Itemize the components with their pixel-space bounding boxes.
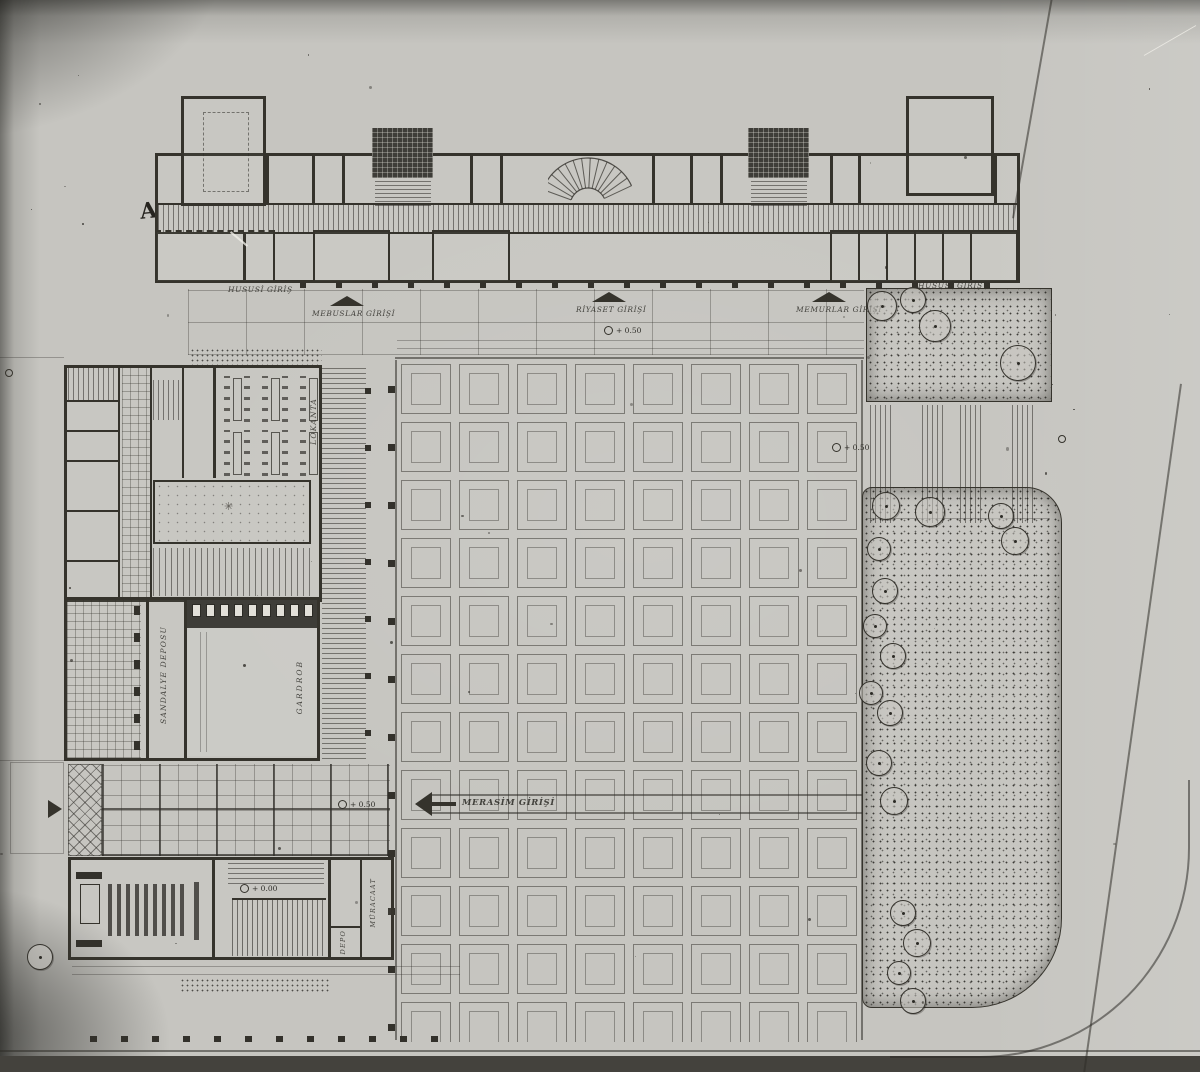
plaza-cell bbox=[807, 1002, 857, 1042]
portico-column-dot bbox=[444, 282, 450, 288]
plaza-cell-inner bbox=[585, 489, 615, 521]
plaza-cell-inner bbox=[643, 1011, 673, 1042]
colonnade-line bbox=[510, 280, 830, 281]
plaza-cell bbox=[401, 538, 451, 588]
wall bbox=[213, 368, 216, 478]
sideboard bbox=[76, 872, 102, 879]
plaza-cell bbox=[749, 538, 799, 588]
plaza-cell-inner bbox=[759, 895, 789, 927]
plaza-cell bbox=[749, 422, 799, 472]
portico-column-dot bbox=[552, 282, 558, 288]
plaza-cell bbox=[459, 828, 509, 878]
plaza-cell-inner bbox=[759, 721, 789, 753]
plaza-cell bbox=[807, 364, 857, 414]
left-road-line bbox=[0, 357, 64, 358]
plaza-cell bbox=[575, 1002, 625, 1042]
bench-bar bbox=[180, 884, 184, 936]
plaza-cell bbox=[575, 886, 625, 936]
plaza-cell bbox=[807, 480, 857, 530]
plaza-cell bbox=[459, 886, 509, 936]
room-label-store: DEPO bbox=[340, 930, 347, 954]
south-column-dot bbox=[121, 1036, 128, 1042]
north-planting-strip bbox=[190, 348, 322, 365]
column-dot bbox=[388, 386, 395, 393]
lattice-strip bbox=[68, 764, 102, 856]
west-stair-treads bbox=[375, 178, 431, 206]
level-marker-hall: + 0.00 bbox=[240, 884, 277, 893]
room-label-chair-store: SANDALYE DEPOSU bbox=[160, 626, 168, 724]
rooms-lower-west bbox=[155, 230, 275, 283]
step-line bbox=[72, 974, 460, 975]
wall bbox=[360, 860, 362, 958]
plaza-cell-inner bbox=[411, 953, 441, 985]
wall bbox=[994, 156, 997, 204]
plaza-cell-inner bbox=[817, 837, 847, 869]
grand-stair bbox=[232, 898, 326, 956]
wc-fixture bbox=[234, 604, 243, 617]
wall bbox=[266, 156, 269, 204]
fan-stair bbox=[548, 156, 658, 208]
room-label-restaurant: LOKANTA bbox=[310, 398, 318, 445]
tree-icon bbox=[877, 700, 903, 726]
restaurant-tables bbox=[262, 430, 288, 476]
plaza-cell-inner bbox=[585, 431, 615, 463]
dust-speck bbox=[1054, 751, 1056, 753]
plaza-cell-inner bbox=[469, 489, 499, 521]
south-planting-strip bbox=[180, 978, 330, 992]
plaza-west-edge bbox=[395, 360, 397, 1040]
plaza-cell bbox=[459, 538, 509, 588]
plaza-cell bbox=[401, 480, 451, 530]
plaza-cell bbox=[807, 944, 857, 994]
bench-bar bbox=[108, 884, 112, 936]
plant-icon: ✳ bbox=[224, 500, 233, 513]
plaza-cell-inner bbox=[759, 431, 789, 463]
tree-icon bbox=[988, 503, 1014, 529]
south-column-dot bbox=[152, 1036, 159, 1042]
column-dot bbox=[365, 616, 371, 622]
tree-icon bbox=[1001, 527, 1029, 555]
plaza-cell bbox=[575, 944, 625, 994]
bottom-road-band bbox=[0, 1056, 1200, 1072]
plaza-cell-inner bbox=[411, 721, 441, 753]
corridor-grid bbox=[122, 368, 150, 600]
plaza-cell bbox=[633, 944, 683, 994]
plaza-cell bbox=[459, 422, 509, 472]
wall bbox=[328, 860, 331, 958]
plaza-cell-inner bbox=[411, 895, 441, 927]
guide-line bbox=[206, 632, 207, 752]
plaza-cell-inner bbox=[643, 431, 673, 463]
wc-fixture bbox=[192, 604, 201, 617]
plaza-cell bbox=[691, 944, 741, 994]
tree-icon bbox=[887, 961, 911, 985]
plaza-cell bbox=[691, 596, 741, 646]
scratch-mark bbox=[1144, 25, 1196, 56]
plaza-cell-inner bbox=[527, 721, 557, 753]
wall bbox=[66, 430, 120, 432]
plaza-cell-inner bbox=[585, 547, 615, 579]
portico-column-dot bbox=[588, 282, 594, 288]
tree-icon bbox=[919, 310, 951, 342]
room-lower bbox=[432, 230, 510, 283]
plaza-cell-inner bbox=[701, 489, 731, 521]
wall bbox=[942, 232, 944, 280]
plaza-cell-inner bbox=[701, 663, 731, 695]
plaza-cell bbox=[633, 538, 683, 588]
west-stair-block bbox=[372, 128, 433, 178]
plaza-cell-inner bbox=[817, 489, 847, 521]
dust-speck bbox=[461, 515, 464, 518]
plaza-cell-inner bbox=[817, 373, 847, 405]
plaza-cell bbox=[749, 364, 799, 414]
wall bbox=[243, 232, 246, 280]
wall bbox=[720, 156, 723, 204]
plaza-cell-inner bbox=[469, 663, 499, 695]
plaza-cell bbox=[691, 1002, 741, 1042]
plaza-cell-inner bbox=[643, 895, 673, 927]
east-tower bbox=[906, 96, 994, 196]
column-dot bbox=[134, 687, 140, 696]
plaza-cell bbox=[691, 712, 741, 762]
tree-icon bbox=[867, 291, 897, 321]
dust-speck bbox=[964, 156, 967, 159]
ceremonial-axis-line bbox=[432, 812, 862, 814]
plaza-cell-inner bbox=[759, 605, 789, 637]
plaza-cell bbox=[807, 596, 857, 646]
entrance-label-ceremonial: MERASİM GİRİŞİ bbox=[462, 799, 555, 808]
plaza-grid bbox=[397, 360, 862, 1042]
plaza-cell-inner bbox=[701, 953, 731, 985]
step-line bbox=[72, 966, 460, 967]
south-column-dot bbox=[276, 1036, 283, 1042]
plaza-cell bbox=[807, 886, 857, 936]
dust-speck bbox=[1045, 472, 1047, 474]
plaza-cell bbox=[401, 712, 451, 762]
tree-icon bbox=[867, 537, 891, 561]
plaza-cell bbox=[807, 828, 857, 878]
plaza-cell bbox=[459, 596, 509, 646]
dust-speck bbox=[390, 641, 393, 644]
plaza-cell bbox=[517, 1002, 567, 1042]
column-dot bbox=[134, 660, 140, 669]
plaza-cell bbox=[575, 828, 625, 878]
portico-column-dot bbox=[732, 282, 738, 288]
level-value: + 0.50 bbox=[844, 443, 869, 452]
plaza-cell bbox=[517, 712, 567, 762]
portico-column-dot bbox=[876, 282, 882, 288]
dust-speck bbox=[39, 103, 41, 105]
step-line bbox=[397, 340, 864, 341]
restaurant-tables bbox=[262, 376, 288, 422]
plaza-cell bbox=[401, 596, 451, 646]
plaza-cell bbox=[459, 654, 509, 704]
level-marker-plaza-east: + 0.50 bbox=[832, 443, 869, 452]
portico-column-dot bbox=[984, 282, 990, 288]
wall bbox=[914, 232, 916, 280]
plaza-cell-inner bbox=[527, 663, 557, 695]
wall bbox=[858, 156, 861, 204]
west-entrance-arrow bbox=[48, 800, 62, 818]
wall bbox=[470, 156, 473, 204]
portico-column-dot bbox=[696, 282, 702, 288]
wall bbox=[146, 600, 149, 758]
plaza-cell-inner bbox=[411, 431, 441, 463]
tree-icon bbox=[27, 944, 53, 970]
column-dot bbox=[365, 673, 371, 679]
west-portico bbox=[322, 367, 366, 759]
wall bbox=[830, 156, 833, 204]
plaza-cell-inner bbox=[817, 895, 847, 927]
plaza-cell-inner bbox=[469, 605, 499, 637]
plaza-cell bbox=[459, 712, 509, 762]
plaza-cell-inner bbox=[527, 373, 557, 405]
room-label-reception: MÜRACAAT bbox=[370, 878, 377, 928]
plaza-cell bbox=[517, 828, 567, 878]
portico-column-dot bbox=[300, 282, 306, 288]
plaza-cell-inner bbox=[701, 605, 731, 637]
dust-speck bbox=[1052, 384, 1053, 385]
plaza-cell bbox=[749, 1002, 799, 1042]
tree-icon bbox=[872, 578, 898, 604]
plaza-cell bbox=[459, 364, 509, 414]
wall bbox=[66, 460, 120, 462]
level-ring-icon bbox=[832, 443, 841, 452]
plaza-cell bbox=[575, 364, 625, 414]
wc-fixture bbox=[248, 604, 257, 617]
wc-fixture bbox=[276, 604, 285, 617]
plaza-cell bbox=[401, 944, 451, 994]
north-forecourt bbox=[188, 289, 864, 355]
plaza-cell-inner bbox=[585, 663, 615, 695]
plaza-cell bbox=[517, 538, 567, 588]
column-dot bbox=[134, 741, 140, 750]
plaza-cell-inner bbox=[643, 489, 673, 521]
plaza-cell-inner bbox=[469, 1011, 499, 1042]
plaza-cell-inner bbox=[701, 431, 731, 463]
plaza-cell-inner bbox=[701, 1011, 731, 1042]
dust-speck bbox=[167, 314, 169, 316]
dust-speck bbox=[799, 569, 802, 572]
plaza-cell-inner bbox=[469, 953, 499, 985]
column-dot bbox=[365, 730, 371, 736]
portico-column-dot bbox=[516, 282, 522, 288]
dust-speck bbox=[69, 587, 71, 589]
plaza-cell bbox=[517, 364, 567, 414]
plaza-cell bbox=[401, 828, 451, 878]
plaza-cell-inner bbox=[411, 489, 441, 521]
tree-icon bbox=[880, 787, 908, 815]
dust-speck bbox=[369, 86, 372, 89]
wc-fixture bbox=[220, 604, 229, 617]
garden-steps bbox=[153, 548, 313, 596]
south-column-dot bbox=[431, 1036, 438, 1042]
plaza-cell bbox=[459, 480, 509, 530]
bench-bar bbox=[162, 884, 166, 936]
dust-speck bbox=[488, 532, 490, 534]
column-dot bbox=[365, 388, 371, 394]
south-column-dot bbox=[245, 1036, 252, 1042]
left-road-line2 bbox=[0, 760, 64, 761]
plaza-cell bbox=[633, 828, 683, 878]
plaza-cell-inner bbox=[817, 663, 847, 695]
plaza-cell-inner bbox=[759, 837, 789, 869]
room-lower bbox=[313, 230, 390, 283]
wall bbox=[858, 232, 860, 280]
dust-speck bbox=[82, 223, 84, 225]
column-dot bbox=[365, 445, 371, 451]
tree-icon bbox=[872, 492, 900, 520]
plaza-cell bbox=[633, 422, 683, 472]
column-dot bbox=[134, 606, 140, 615]
plaza-cell-inner bbox=[759, 953, 789, 985]
plaza-cell bbox=[575, 654, 625, 704]
plaza-cell bbox=[691, 828, 741, 878]
tree-icon bbox=[1000, 345, 1036, 381]
dust-speck bbox=[311, 561, 312, 562]
plaza-cell-inner bbox=[469, 373, 499, 405]
plaza-cell bbox=[517, 422, 567, 472]
tree-icon bbox=[863, 614, 887, 638]
west-tower-inner bbox=[203, 112, 249, 192]
south-column-dot bbox=[183, 1036, 190, 1042]
plaza-cell-inner bbox=[701, 895, 731, 927]
plaza-cell bbox=[517, 886, 567, 936]
plaza-cell-inner bbox=[817, 953, 847, 985]
bench-bar bbox=[153, 884, 157, 936]
tree-icon bbox=[903, 929, 931, 957]
wall bbox=[330, 926, 362, 928]
wall bbox=[66, 510, 120, 512]
portico-column-dot bbox=[840, 282, 846, 288]
plaza-cell bbox=[517, 480, 567, 530]
portico-column-dot bbox=[480, 282, 486, 288]
plaza-cell bbox=[575, 712, 625, 762]
column-dot bbox=[388, 966, 395, 973]
plaza-cell-inner bbox=[469, 431, 499, 463]
plaza-cell-inner bbox=[585, 837, 615, 869]
dust-speck bbox=[630, 403, 633, 406]
dust-speck bbox=[78, 75, 79, 76]
wall bbox=[118, 368, 120, 600]
plaza-cell bbox=[807, 654, 857, 704]
stair-room bbox=[68, 368, 118, 400]
plaza-cell-inner bbox=[411, 837, 441, 869]
plaza-cell bbox=[691, 886, 741, 936]
wc-fixture bbox=[290, 604, 299, 617]
east-stair-treads bbox=[751, 178, 807, 206]
plaza-cell bbox=[401, 422, 451, 472]
plaza-cell bbox=[633, 596, 683, 646]
column-dot bbox=[388, 560, 395, 567]
column-dot bbox=[388, 676, 395, 683]
plaza-cell bbox=[749, 596, 799, 646]
tree-icon bbox=[915, 497, 945, 527]
wall bbox=[182, 368, 184, 478]
small-circle-icon bbox=[1058, 435, 1066, 443]
south-column-dot bbox=[90, 1036, 97, 1042]
plaza-cell-inner bbox=[585, 1011, 615, 1042]
plaza-cell bbox=[459, 1002, 509, 1042]
guide-line bbox=[200, 632, 201, 752]
plaza-cell-inner bbox=[759, 547, 789, 579]
south-column-dot bbox=[307, 1036, 314, 1042]
plaza-cell-inner bbox=[411, 663, 441, 695]
column-dot bbox=[388, 734, 395, 741]
tree-icon bbox=[866, 750, 892, 776]
plaza-cell-inner bbox=[643, 953, 673, 985]
plaza-cell bbox=[633, 712, 683, 762]
west-terrace-grid bbox=[67, 600, 141, 758]
plaza-cell-inner bbox=[469, 721, 499, 753]
south-column-dot bbox=[338, 1036, 345, 1042]
plaza-cell-inner bbox=[585, 953, 615, 985]
step-line bbox=[397, 348, 864, 349]
plaza-cell-inner bbox=[411, 605, 441, 637]
small-stair bbox=[153, 380, 181, 420]
plaza-cell-inner bbox=[527, 953, 557, 985]
plaza-cell-inner bbox=[817, 547, 847, 579]
plaza-cell-inner bbox=[643, 373, 673, 405]
restaurant-tables bbox=[224, 430, 250, 476]
plaza-cell bbox=[633, 654, 683, 704]
wall bbox=[342, 156, 345, 204]
level-ring-icon bbox=[240, 884, 249, 893]
wall bbox=[886, 232, 888, 280]
plaza-cell-inner bbox=[759, 1011, 789, 1042]
plaza-cell-inner bbox=[527, 837, 557, 869]
south-column-dot bbox=[400, 1036, 407, 1042]
plaza-cell-inner bbox=[585, 895, 615, 927]
bench-bar bbox=[171, 884, 175, 936]
plaza-cell bbox=[691, 654, 741, 704]
plaza-cell bbox=[749, 944, 799, 994]
plaza-cell bbox=[633, 1002, 683, 1042]
plaza-cell-inner bbox=[701, 721, 731, 753]
plaza-cell bbox=[401, 364, 451, 414]
plaza-cell bbox=[575, 480, 625, 530]
dust-speck bbox=[308, 54, 310, 56]
dust-speck bbox=[355, 901, 358, 904]
level-value: + 0.00 bbox=[252, 884, 277, 893]
plaza-cell-inner bbox=[817, 1011, 847, 1042]
plaza-cell bbox=[517, 596, 567, 646]
plaza-cell-inner bbox=[527, 547, 557, 579]
plaza-cell bbox=[517, 654, 567, 704]
plaza-cell-inner bbox=[527, 1011, 557, 1042]
tree-icon bbox=[859, 681, 883, 705]
wc-fixture bbox=[206, 604, 215, 617]
plaza-cell bbox=[633, 886, 683, 936]
head-table bbox=[80, 884, 100, 924]
plaza-cell-inner bbox=[469, 547, 499, 579]
plaza-cell bbox=[749, 712, 799, 762]
plaza-cell bbox=[749, 480, 799, 530]
column-dot bbox=[365, 559, 371, 565]
plaza-cell-inner bbox=[643, 605, 673, 637]
plaza-cell bbox=[749, 654, 799, 704]
bench-bar bbox=[117, 884, 121, 936]
plaza-cell bbox=[691, 480, 741, 530]
plaza-cell bbox=[401, 654, 451, 704]
plaza-cell bbox=[691, 422, 741, 472]
wall bbox=[212, 860, 215, 958]
dais-bar bbox=[194, 882, 199, 940]
column-dot bbox=[388, 502, 395, 509]
dust-speck bbox=[278, 847, 281, 850]
south-garden-bed bbox=[862, 487, 1062, 1008]
plaza-cell bbox=[575, 422, 625, 472]
